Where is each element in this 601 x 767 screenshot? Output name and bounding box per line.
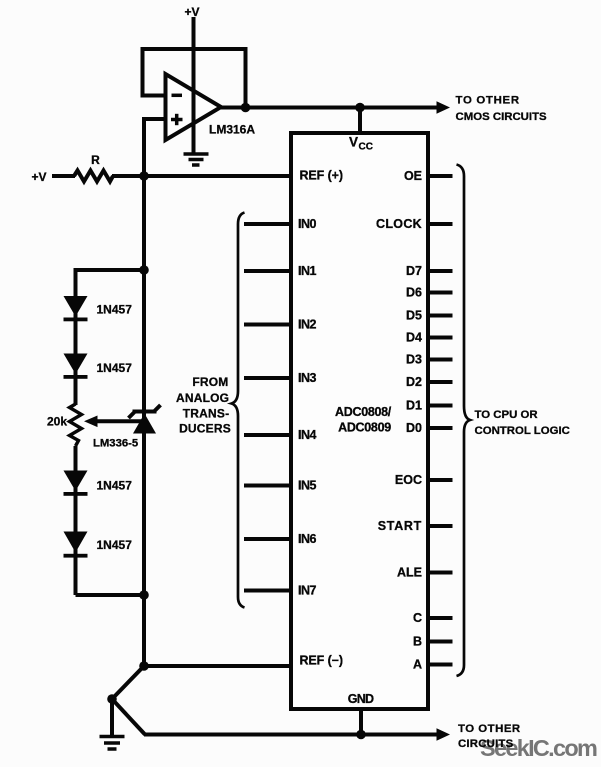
svg-text:D0: D0 [406, 421, 422, 435]
svg-text:R: R [91, 153, 100, 167]
svg-text:CONTROL LOGIC: CONTROL LOGIC [475, 425, 570, 437]
svg-text:EOC: EOC [395, 473, 422, 487]
svg-text:LM336-5: LM336-5 [93, 438, 138, 450]
svg-text:ADC0809: ADC0809 [338, 420, 391, 434]
svg-text:OE: OE [404, 169, 422, 183]
svg-text:CC: CC [359, 142, 373, 153]
svg-text:C: C [413, 611, 422, 625]
svg-text:D6: D6 [406, 286, 422, 300]
svg-text:B: B [413, 635, 422, 649]
svg-text:IN5: IN5 [298, 479, 317, 493]
svg-text:IN4: IN4 [298, 428, 317, 442]
svg-text:LM316A: LM316A [209, 123, 255, 137]
svg-text:ADC0808/: ADC0808/ [335, 405, 392, 419]
svg-text:D4: D4 [406, 331, 422, 345]
svg-text:D7: D7 [406, 264, 422, 278]
svg-text:V: V [349, 135, 358, 150]
svg-text:CMOS CIRCUITS: CMOS CIRCUITS [456, 111, 548, 123]
svg-text:ALE: ALE [397, 566, 422, 580]
svg-text:GND: GND [348, 692, 374, 706]
svg-text:D5: D5 [406, 309, 422, 323]
svg-text:IN1: IN1 [298, 264, 317, 278]
svg-text:ANALOG: ANALOG [176, 391, 229, 405]
svg-text:REF (−): REF (−) [300, 653, 343, 667]
svg-text:TO OTHER: TO OTHER [458, 723, 521, 735]
svg-text:1N457: 1N457 [97, 302, 133, 316]
svg-text:TRANS-: TRANS- [183, 406, 230, 420]
svg-text:20k: 20k [47, 415, 67, 429]
svg-text:IN3: IN3 [298, 371, 317, 385]
svg-text:1N457: 1N457 [97, 538, 133, 552]
svg-text:D1: D1 [406, 399, 422, 413]
svg-text:FROM: FROM [192, 375, 228, 389]
svg-text:CIRCUITS: CIRCUITS [458, 738, 514, 750]
svg-text:+V: +V [31, 170, 46, 184]
svg-text:REF (+): REF (+) [300, 168, 343, 182]
svg-text:IN6: IN6 [298, 532, 317, 546]
svg-text:TO OTHER: TO OTHER [456, 94, 520, 106]
svg-text:1N457: 1N457 [97, 478, 133, 492]
svg-text:CLOCK: CLOCK [376, 217, 422, 231]
svg-text:A: A [413, 658, 422, 672]
svg-text:D2: D2 [406, 375, 422, 389]
svg-text:IN2: IN2 [298, 318, 317, 332]
svg-text:DUCERS: DUCERS [179, 422, 231, 436]
svg-text:+V: +V [184, 5, 199, 19]
svg-text:1N457: 1N457 [97, 361, 133, 375]
svg-text:IN7: IN7 [298, 584, 317, 598]
svg-text:D3: D3 [406, 353, 422, 367]
svg-text:START: START [378, 519, 422, 533]
svg-text:IN0: IN0 [298, 217, 317, 231]
svg-text:TO CPU OR: TO CPU OR [475, 409, 538, 421]
